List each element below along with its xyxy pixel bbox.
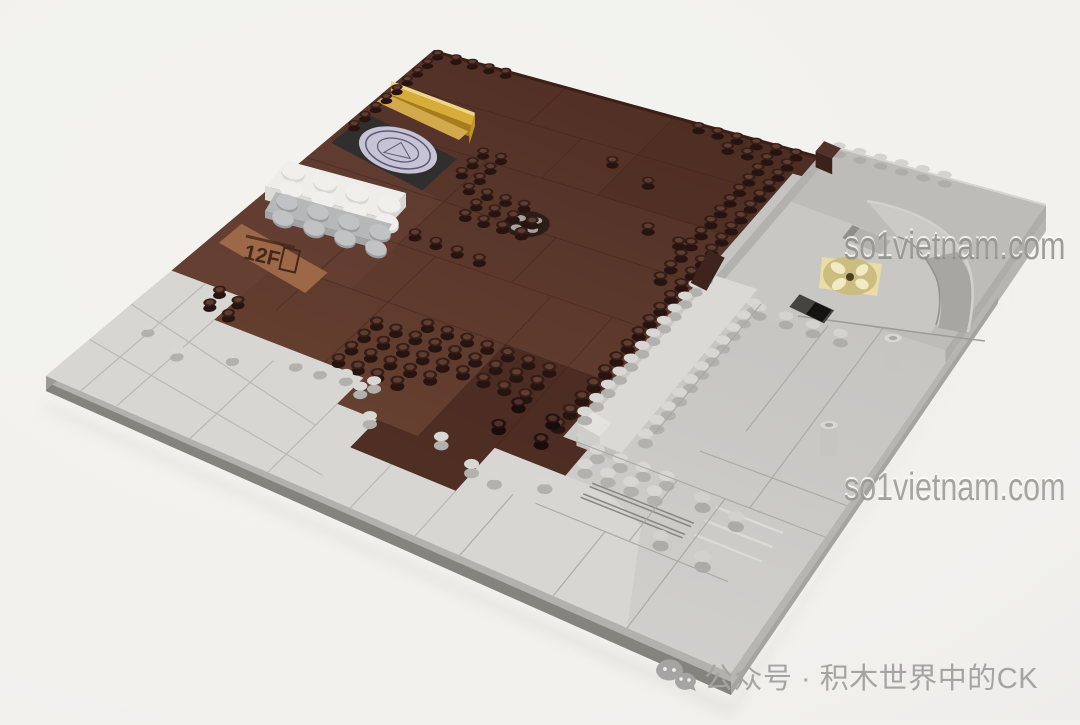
svg-text:公众号 · 积木世界中的CK: 公众号 · 积木世界中的CK	[704, 662, 1038, 695]
svg-text:so1vietnam.com: so1vietnam.com	[844, 467, 1065, 509]
svg-text:so1vietnam.com: so1vietnam.com	[844, 226, 1065, 268]
